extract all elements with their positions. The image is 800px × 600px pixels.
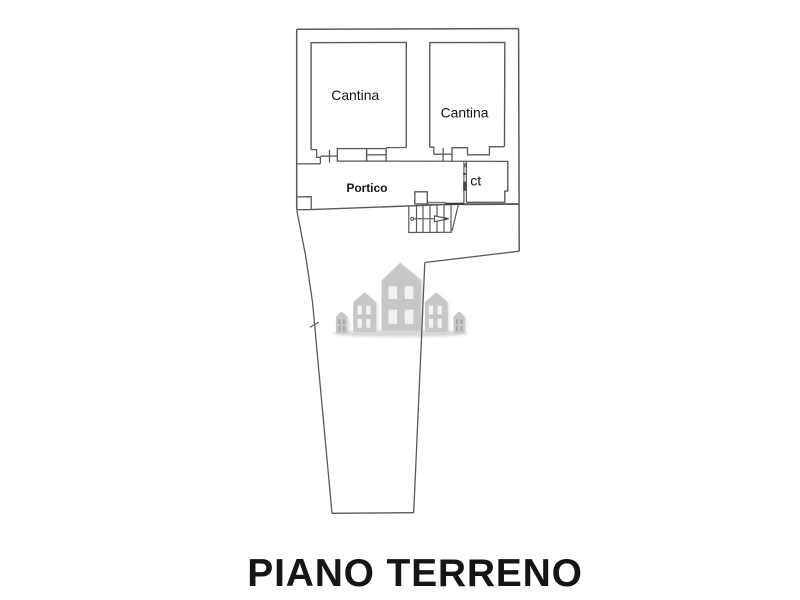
svg-text:PIANO TERRENO: PIANO TERRENO bbox=[247, 552, 582, 595]
svg-text:Portico: Portico bbox=[346, 181, 387, 195]
svg-text:Cantina: Cantina bbox=[441, 105, 489, 121]
svg-text:Cantina: Cantina bbox=[331, 87, 379, 103]
svg-text:ct: ct bbox=[470, 173, 481, 189]
